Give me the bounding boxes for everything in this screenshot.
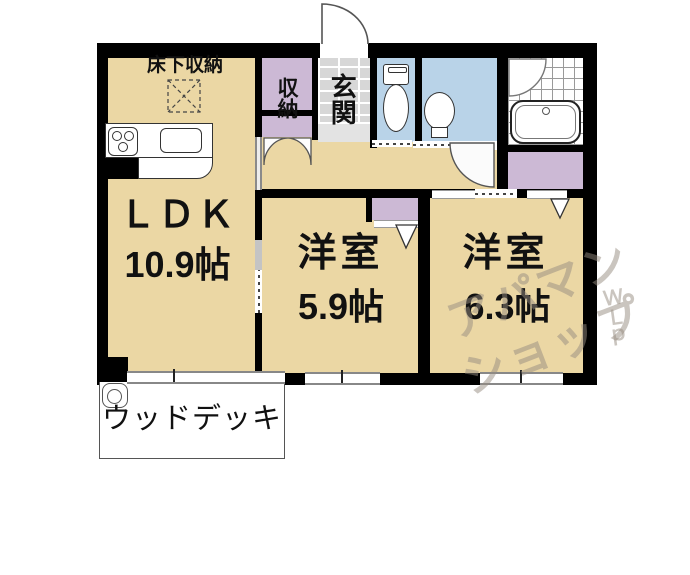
entrance-door-arc xyxy=(322,4,368,44)
ldk-label: ＬＤＫ xyxy=(100,196,255,235)
floorplan-canvas: 床下収納 収納 玄関 ＬＤＫ 10.9帖 洋室 5.9帖 洋室 6.3帖 ウッド… xyxy=(0,0,690,575)
bedroom1-label: 洋室 xyxy=(283,234,398,275)
bathroom-door-arc xyxy=(509,59,546,96)
hall-closet-label: 収納 xyxy=(275,62,297,134)
ldk-area-label: 10.9帖 xyxy=(100,246,255,284)
hall-closet-door-left xyxy=(264,138,288,165)
bedroom2-closet-door-wedge xyxy=(551,199,569,218)
wood-deck-label: ウッドデッキ xyxy=(100,404,284,434)
entrance-label: 玄関 xyxy=(328,62,355,136)
bedroom1-area-label: 5.9帖 xyxy=(276,288,406,326)
floor-storage-label: 床下収納 xyxy=(125,56,245,76)
washroom-door-arc xyxy=(450,143,494,187)
floor-storage-hatch-icon xyxy=(168,80,200,112)
hall-closet-door-right xyxy=(288,138,311,165)
bedroom1-closet-door-wedge xyxy=(396,225,417,248)
